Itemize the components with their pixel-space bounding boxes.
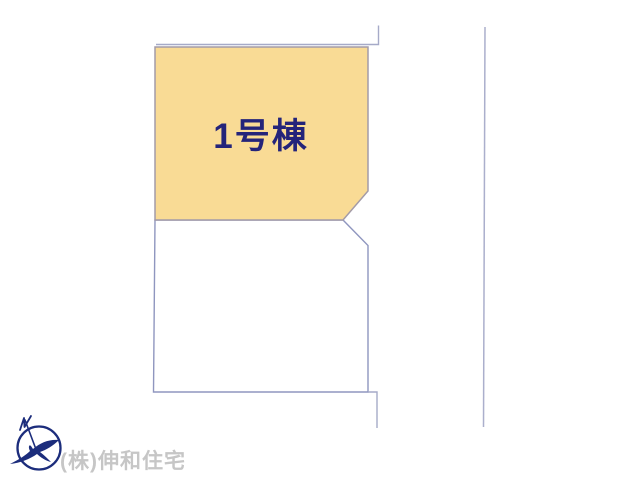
company-name: (株)伸和住宅 [60, 445, 186, 475]
boundary-line-bottom [368, 392, 377, 428]
plot-2-outline [154, 220, 369, 392]
bird-compass-logo-icon [6, 410, 66, 478]
site-plan-drawing: 1号棟 [0, 0, 640, 480]
site-plan-canvas: 1号棟 (株)伸和住宅 [0, 0, 640, 480]
road-boundary-line [484, 27, 486, 427]
plot-1-label: 1号棟 [213, 117, 308, 156]
boundary-line-top [156, 26, 379, 45]
